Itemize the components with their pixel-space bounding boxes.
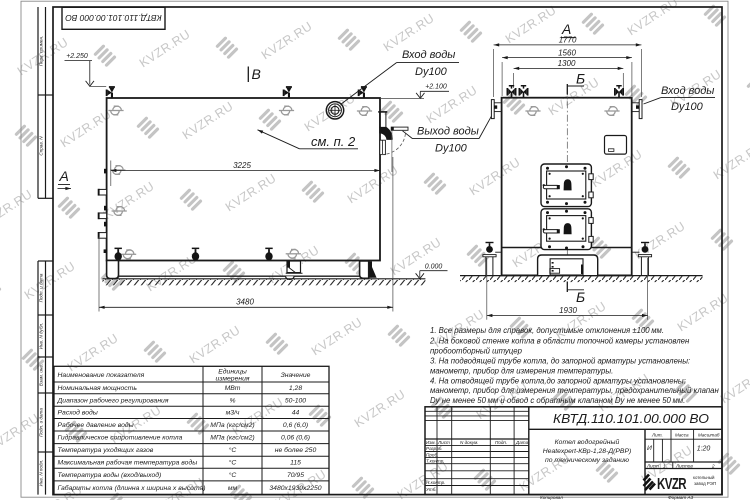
svg-text:мм: мм bbox=[228, 485, 238, 492]
svg-text:Изм.: Изм. bbox=[426, 440, 436, 445]
svg-text:МПа (кгс/см2): МПа (кгс/см2) bbox=[210, 435, 254, 442]
svg-text:Вход воды: Вход воды bbox=[402, 49, 455, 61]
svg-text:Температура уходящих газов: Температура уходящих газов bbox=[58, 446, 154, 454]
svg-text:2. На боковой стенке котла в: 2. На боковой стенке котла в области топ… bbox=[429, 336, 690, 345]
svg-text:Б: Б bbox=[576, 289, 585, 305]
svg-text:В: В bbox=[252, 66, 261, 82]
svg-text:Утб.: Утб. bbox=[426, 487, 437, 492]
svg-text:Перв. примен.: Перв. примен. bbox=[38, 36, 43, 67]
svg-text:Вход воды: Вход воды bbox=[661, 85, 714, 97]
svg-text:Наименование показателя: Наименование показателя bbox=[58, 372, 145, 379]
svg-text:3225: 3225 bbox=[233, 161, 251, 170]
svg-text:KVZR.RU: KVZR.RU bbox=[223, 171, 279, 214]
svg-text:50-100: 50-100 bbox=[285, 397, 306, 404]
svg-text:КВТД.110.101.00.000 ВО: КВТД.110.101.00.000 ВО bbox=[553, 412, 709, 426]
svg-text:KVZR.RU: KVZR.RU bbox=[187, 323, 243, 366]
svg-text:МВт: МВт bbox=[225, 385, 241, 392]
svg-text:°С: °С bbox=[229, 446, 237, 454]
svg-text:KVZR.RU: KVZR.RU bbox=[180, 99, 236, 142]
svg-text:KVZR.RU: KVZR.RU bbox=[625, 0, 681, 38]
svg-text:Максимальная рабочая температу: Максимальная рабочая температура воды bbox=[58, 459, 198, 467]
svg-text:Номинальная мощность: Номинальная мощность bbox=[58, 385, 138, 392]
svg-text:Листов: Листов bbox=[675, 463, 693, 468]
svg-text:Значение: Значение bbox=[281, 372, 311, 379]
svg-text:+2.100: +2.100 bbox=[425, 84, 447, 91]
svg-text:Габариты котла (длинна х ширин: Габариты котла (длинна х ширина х высота… bbox=[58, 484, 206, 492]
svg-text:Проб.: Проб. bbox=[426, 452, 438, 457]
svg-text:1. Все размеры для справок, д: 1. Все размеры для справок, допустимые о… bbox=[430, 326, 664, 335]
svg-text:1770: 1770 bbox=[559, 36, 577, 45]
svg-text:манометр, прибор для измерения: манометр, прибор для измерения температу… bbox=[430, 366, 613, 375]
svg-text:м3/ч: м3/ч bbox=[226, 410, 240, 417]
svg-text:Единицы: Единицы bbox=[218, 367, 246, 375]
svg-text:1300: 1300 bbox=[558, 59, 576, 68]
svg-text:Дата: Дата bbox=[515, 440, 529, 445]
svg-text:KVZR.RU: KVZR.RU bbox=[388, 235, 444, 278]
svg-text:1,28: 1,28 bbox=[289, 385, 302, 392]
svg-text:Heatexpert-КВр-1,28-Д(РВР): Heatexpert-КВр-1,28-Д(РВР) bbox=[543, 448, 632, 455]
svg-text:Лист: Лист bbox=[646, 463, 659, 468]
svg-text:Б: Б bbox=[576, 71, 585, 87]
svg-text:1:20: 1:20 bbox=[697, 446, 711, 453]
svg-text:Лист: Лист bbox=[437, 440, 450, 445]
svg-text:не более 250: не более 250 bbox=[275, 446, 317, 454]
svg-text:KVZR.RU: KVZR.RU bbox=[467, 155, 523, 198]
svg-text:Копировал: Копировал bbox=[540, 495, 563, 500]
svg-text:1: 1 bbox=[663, 463, 666, 468]
svg-text:0.000: 0.000 bbox=[425, 263, 443, 270]
svg-text:0,06 (0,6): 0,06 (0,6) bbox=[281, 435, 310, 442]
svg-text:KVZR.RU: KVZR.RU bbox=[309, 315, 365, 358]
svg-text:Инв. N дубл.: Инв. N дубл. bbox=[38, 323, 43, 350]
svg-text:N докум.: N докум. bbox=[460, 440, 479, 445]
svg-text:котельный: котельный bbox=[693, 475, 715, 480]
svg-text:KVZR.RU: KVZR.RU bbox=[101, 179, 157, 222]
svg-text:Dy100: Dy100 bbox=[435, 143, 468, 155]
svg-text:Подп. и дата: Подп. и дата bbox=[38, 273, 43, 302]
svg-text:Расход воды: Расход воды bbox=[58, 409, 98, 417]
svg-text:KVZR.RU: KVZR.RU bbox=[352, 387, 408, 430]
svg-text:°С: °С bbox=[229, 471, 237, 479]
svg-text:3480х1930х2250: 3480х1930х2250 bbox=[269, 485, 321, 492]
svg-text:3480: 3480 bbox=[236, 298, 254, 307]
svg-text:KVZR.RU: KVZR.RU bbox=[65, 331, 121, 374]
svg-text:см. п. 2: см. п. 2 bbox=[311, 134, 356, 149]
svg-text:Инв. N подл.: Инв. N подл. bbox=[38, 460, 43, 487]
svg-text:KVZR.RU: KVZR.RU bbox=[711, 139, 750, 182]
svg-text:Взам. инв.: Взам. инв. bbox=[38, 364, 43, 386]
svg-text:Лит.: Лит. bbox=[651, 433, 663, 438]
svg-text:KVZR: KVZR bbox=[657, 476, 687, 493]
svg-text:Н.контр.: Н.контр. bbox=[426, 480, 445, 485]
svg-text:KVZR.RU: KVZR.RU bbox=[259, 19, 315, 62]
svg-text:KVZR.RU: KVZR.RU bbox=[144, 251, 200, 294]
svg-text:+2.250: +2.250 bbox=[66, 53, 88, 60]
svg-text:KVZR.RU: KVZR.RU bbox=[137, 27, 193, 70]
svg-text:KVZR.RU: KVZR.RU bbox=[381, 11, 437, 54]
svg-text:Dy100: Dy100 bbox=[415, 66, 448, 78]
svg-text:Dу не менее 50 мм и обвод с о: Dу не менее 50 мм и обвод с обратным кла… bbox=[430, 396, 685, 405]
svg-text:измерения: измерения bbox=[215, 375, 249, 382]
svg-text:А: А bbox=[59, 168, 69, 184]
svg-text:KVZR.RU: KVZR.RU bbox=[0, 187, 35, 230]
svg-text:KVZR.RU: KVZR.RU bbox=[546, 75, 602, 118]
svg-text:Т.контр.: Т.контр. bbox=[426, 458, 445, 463]
svg-text:Масса: Масса bbox=[675, 433, 689, 438]
svg-text:А: А bbox=[561, 21, 571, 37]
svg-text:KVZR.RU: KVZR.RU bbox=[58, 107, 114, 150]
svg-text:Выход воды: Выход воды bbox=[417, 126, 479, 138]
svg-text:пробоотборный штуцер: пробоотборный штуцер bbox=[430, 346, 523, 355]
svg-text:Температура воды (вход/выход): Температура воды (вход/выход) bbox=[58, 471, 162, 479]
svg-text:МПа (кгс/см2): МПа (кгс/см2) bbox=[210, 422, 254, 429]
svg-text:Масштаб: Масштаб bbox=[698, 433, 720, 438]
svg-text:И: И bbox=[647, 445, 652, 452]
svg-text:3. На подводящей трубе котла,: 3. На подводящей трубе котла, до запорно… bbox=[430, 357, 690, 366]
svg-text:4. На отводящей трубе котла,д: 4. На отводящей трубе котла,до запорной … bbox=[430, 376, 686, 385]
svg-text:манометр, прибор для измерения: манометр, прибор для измерения температу… bbox=[430, 386, 720, 395]
svg-text:KVZR.RU: KVZR.RU bbox=[345, 163, 401, 206]
svg-text:по техническому заданию: по техническому заданию bbox=[545, 456, 629, 464]
svg-text:115: 115 bbox=[290, 460, 301, 467]
svg-text:1930: 1930 bbox=[559, 306, 577, 315]
svg-text:Разраб.: Разраб. bbox=[426, 446, 443, 451]
svg-text:%: % bbox=[229, 397, 235, 404]
svg-text:Формат А3: Формат А3 bbox=[668, 495, 694, 500]
svg-text:Подп. и дата: Подп. и дата bbox=[38, 408, 43, 437]
svg-text:Подп.: Подп. bbox=[495, 440, 507, 445]
svg-text:°С: °С bbox=[229, 459, 237, 467]
svg-text:Dy100: Dy100 bbox=[671, 101, 704, 113]
svg-text:Котел водогрейный: Котел водогрейный bbox=[555, 438, 620, 446]
svg-text:0,6 (6,0): 0,6 (6,0) bbox=[283, 422, 308, 429]
svg-text:Гидравлическое сопротивление к: Гидравлическое сопротивление котла bbox=[58, 434, 183, 442]
svg-text:2: 2 bbox=[711, 463, 715, 468]
svg-text:Рабочее давление воды: Рабочее давление воды bbox=[58, 421, 134, 429]
svg-text:70/95: 70/95 bbox=[287, 472, 304, 479]
svg-text:44: 44 bbox=[292, 410, 300, 417]
svg-text:завод РЭП: завод РЭП bbox=[694, 481, 716, 486]
svg-text:1560: 1560 bbox=[558, 48, 576, 57]
svg-text:KVZR.RU: KVZR.RU bbox=[503, 3, 559, 46]
svg-text:Диапазон рабочего регулировани: Диапазон рабочего регулирования bbox=[57, 396, 169, 404]
svg-text:KVZR.RU: KVZR.RU bbox=[22, 259, 78, 302]
svg-text:Справ. N: Справ. N bbox=[38, 136, 43, 156]
